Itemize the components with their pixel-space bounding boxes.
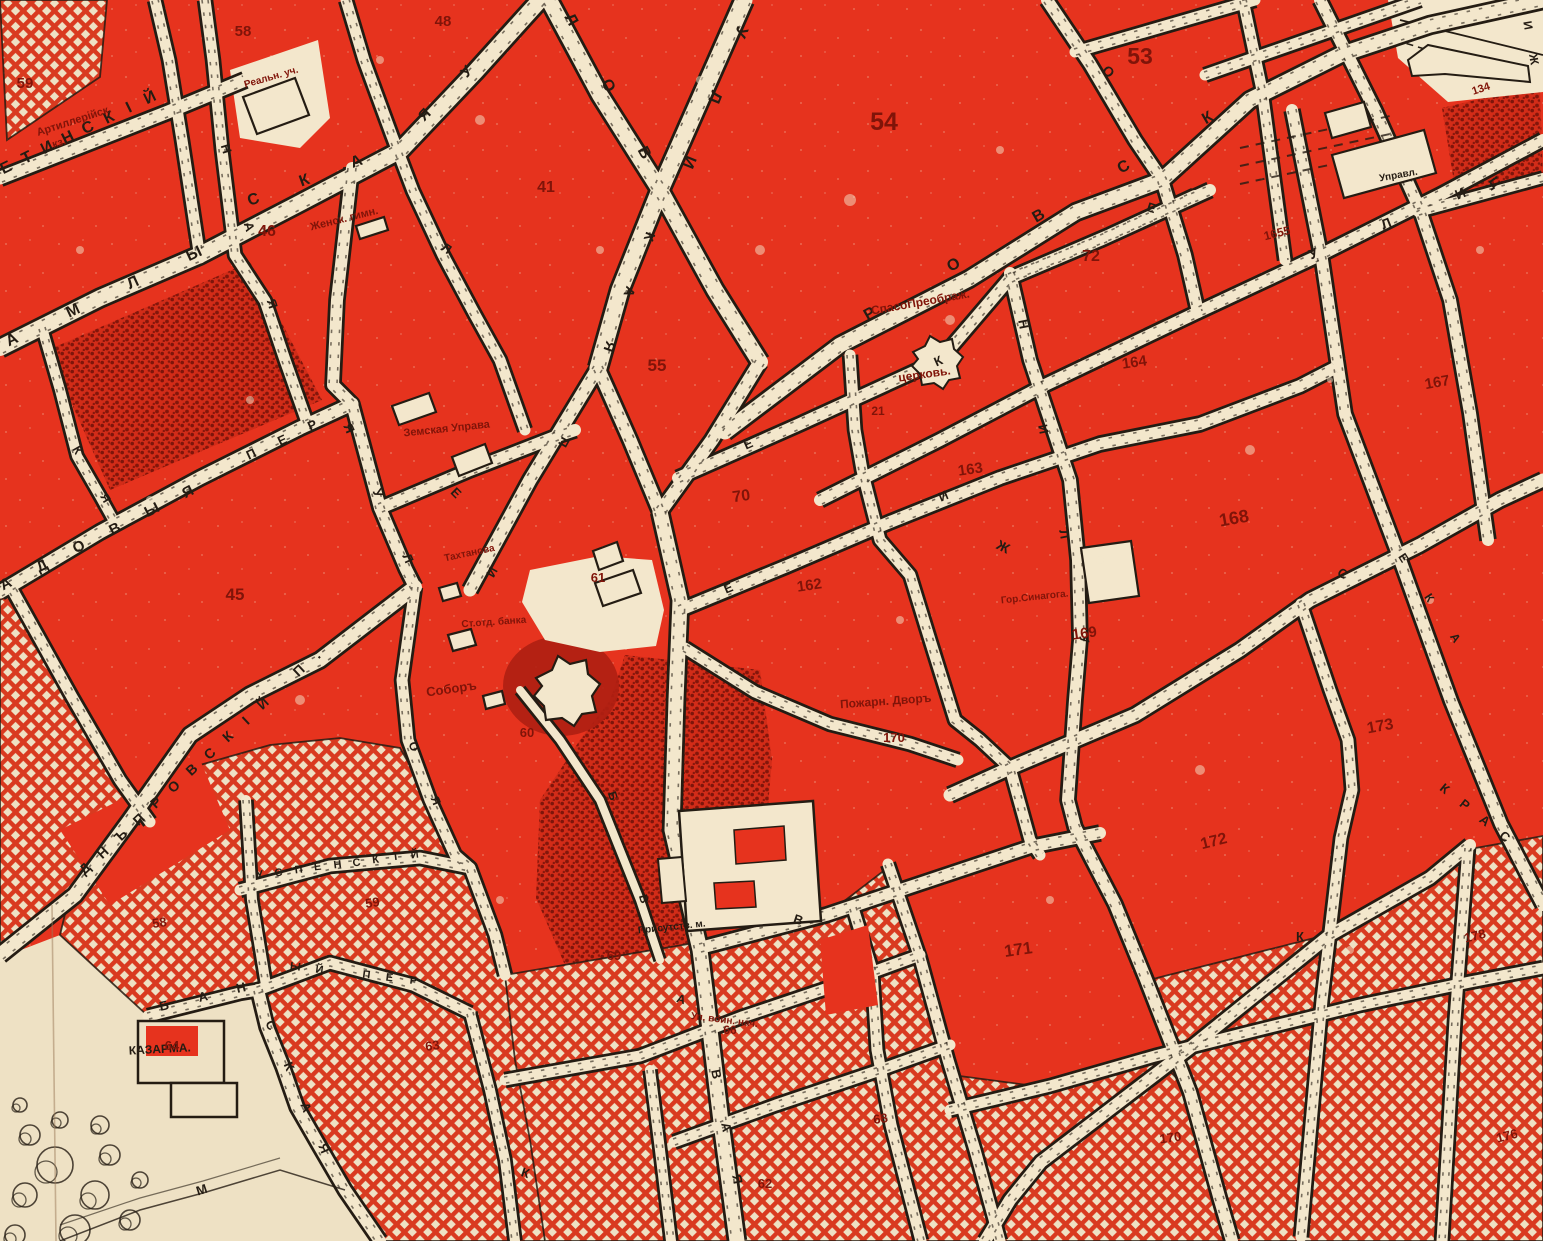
- svg-text:163: 163: [957, 459, 984, 479]
- svg-text:Е: Е: [385, 972, 394, 985]
- svg-text:54: 54: [870, 108, 898, 136]
- svg-text:64: 64: [165, 1038, 180, 1053]
- svg-text:58: 58: [151, 914, 167, 931]
- svg-text:48: 48: [435, 13, 452, 30]
- svg-text:58: 58: [235, 23, 252, 40]
- svg-text:45: 45: [226, 585, 245, 604]
- svg-text:62: 62: [758, 1176, 772, 1191]
- svg-text:Й: Й: [410, 848, 420, 862]
- svg-text:68: 68: [872, 1110, 888, 1127]
- svg-text:С: С: [274, 867, 283, 880]
- svg-text:Р: Р: [409, 975, 418, 988]
- svg-text:72: 72: [1082, 248, 1100, 265]
- svg-text:70: 70: [731, 487, 751, 506]
- svg-text:К: К: [1296, 929, 1304, 944]
- svg-text:63: 63: [424, 1037, 440, 1054]
- svg-text:41: 41: [537, 179, 555, 196]
- svg-text:162: 162: [796, 575, 823, 595]
- svg-text:Ы: Ы: [289, 960, 301, 973]
- svg-text:170: 170: [883, 730, 905, 745]
- svg-text:46: 46: [258, 223, 276, 240]
- svg-text:21: 21: [871, 404, 885, 418]
- svg-text:66: 66: [723, 1023, 737, 1037]
- svg-text:Н: Н: [333, 859, 342, 872]
- svg-text:59: 59: [364, 894, 380, 911]
- svg-text:171: 171: [1003, 938, 1034, 961]
- svg-text:164: 164: [1121, 352, 1149, 372]
- svg-text:П: П: [294, 864, 303, 877]
- svg-text:69: 69: [607, 948, 621, 963]
- svg-text:Й: Й: [315, 963, 325, 977]
- svg-text:55: 55: [648, 356, 667, 375]
- svg-text:169: 169: [1071, 623, 1098, 643]
- svg-text:П: П: [362, 969, 371, 982]
- svg-text:59: 59: [17, 75, 34, 92]
- svg-text:61: 61: [591, 570, 605, 585]
- svg-text:53: 53: [1127, 43, 1153, 69]
- svg-text:60: 60: [520, 725, 534, 740]
- svg-text:170: 170: [1159, 1129, 1183, 1147]
- svg-text:Е: Е: [313, 861, 322, 874]
- svg-text:С: С: [352, 857, 361, 870]
